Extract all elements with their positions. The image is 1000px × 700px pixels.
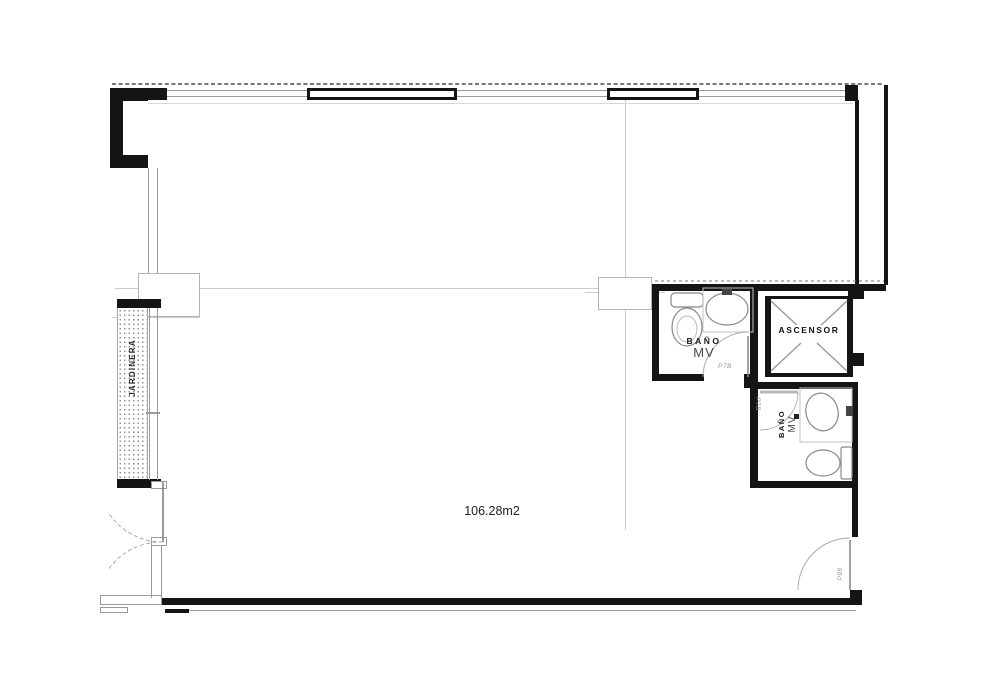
faucet-icon [846,406,853,416]
bathroom-secondary-label-line1: BAÑO [778,410,786,438]
sink-icon [703,288,753,332]
door-swing-arc [108,512,163,542]
toilet-icon [806,447,852,479]
elevator-label-text: ASCENSOR [777,325,842,335]
door-code-main-bath: P7B [718,363,732,370]
door-p98 [798,538,850,590]
plan-linework [0,0,1000,700]
bathroom-main-label: BAÑO MV [672,337,736,361]
door-code-secondary-bath: P7B [743,397,771,411]
door-code-text: P7B [753,397,760,411]
door-swing-arc [798,538,850,590]
planter-label-text: JARDINERA [129,339,138,396]
bathroom-secondary-label: BAÑO MV [766,402,810,446]
floor-plan: 106.28m2 ASCENSOR BAÑO MV P7B BAÑO MV P7… [0,0,1000,700]
entry-double-door [108,482,163,570]
bathroom-secondary-label-line2: MV [787,410,798,438]
bathroom-main-label-line2: MV [672,346,736,360]
elevator-cross-icon [771,301,847,371]
planter-label: JARDINERA [125,332,141,404]
door-code-p98: P98 [827,567,855,581]
door-code-text: P98 [837,567,844,580]
elevator-label: ASCENSOR [763,326,855,335]
door-swing-arc [108,542,163,570]
area-label: 106.28m2 [412,505,572,519]
faucet-icon [722,289,732,295]
